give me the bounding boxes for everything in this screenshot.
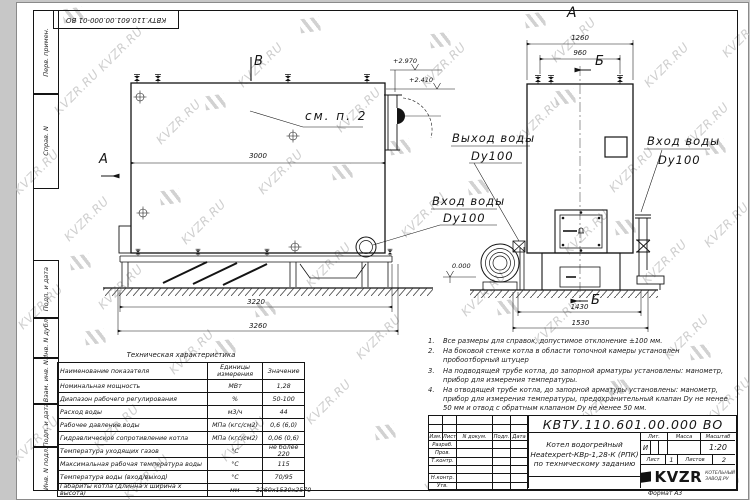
- sidebar-stamp-label: Взам. инв. N: [42, 360, 50, 402]
- inlet-water-left-label: Вход воды: [432, 194, 505, 208]
- tb-change-cell: [511, 416, 528, 425]
- view-marker-a-top: А: [567, 5, 577, 21]
- format-note: Формат А3: [648, 490, 682, 497]
- side-view: [101, 57, 455, 335]
- spec-cell-value: 50-100: [262, 393, 304, 405]
- tb-lit-headers: Лит. Масса Масштаб: [641, 433, 735, 441]
- spec-cell-unit: мм: [207, 484, 262, 496]
- spec-row: Габариты котла (длинна х ширина х высота…: [58, 483, 304, 496]
- sidebar-stamp-label: Инв. N дубл.: [42, 317, 50, 360]
- tb-sign-cell: [511, 466, 528, 474]
- note-item: 1.Все размеры для справок, допустимое от…: [428, 337, 731, 346]
- front-view: [443, 40, 664, 332]
- tb-sign-cell: [493, 458, 511, 466]
- tb-sign-cell: [457, 441, 493, 449]
- elevation-top: +2.970: [393, 57, 417, 65]
- tb-change-cell: [457, 416, 493, 425]
- top-reference-stamp: КВТУ.110.601.00.000-01 ВО: [53, 10, 179, 29]
- spec-cell-name: Расход воды: [58, 406, 207, 418]
- spec-cell-name: Номинальная мощность: [58, 380, 207, 392]
- spec-cell-unit: м3/ч: [207, 406, 263, 418]
- spec-cell-unit: °С: [207, 458, 263, 470]
- format-value: А3: [674, 490, 682, 497]
- tb-change-cell: [443, 425, 457, 434]
- spec-table: Техническая характеристика Наименование …: [57, 351, 305, 497]
- tb-sign-row-label: Пров.: [429, 449, 457, 457]
- sidebar-stamp-label: Перв. примен.: [42, 28, 50, 77]
- spec-cell-unit: %: [207, 393, 263, 405]
- sheet-value: 1: [665, 455, 677, 465]
- tb-col-header: Изм.: [429, 433, 443, 441]
- top-reference-stamp-text: КВТУ.110.601.00.000-01 ВО: [66, 16, 166, 24]
- spec-cell-name: Диапазон рабочего регулирования: [58, 393, 207, 405]
- tb-change-cell: [493, 416, 511, 425]
- tb-sign-cell: [511, 483, 528, 491]
- spec-row: Рабочее давление водыМПа (кгс/см2)0,6 (6…: [58, 418, 304, 431]
- spec-row: Температура уходящих газов°Сне более 220: [58, 444, 304, 457]
- tb-sheet-row: Лист 1 Листов 2: [641, 455, 735, 465]
- tb-sign-cell: [457, 449, 493, 457]
- spec-cell-value: 70/95: [262, 471, 304, 483]
- dim-3220: 3220: [120, 298, 392, 306]
- tb-sign-cell: [511, 474, 528, 482]
- section-marker-a-left: А: [99, 152, 108, 167]
- kvzr-logo-subtext-line2: ЗАВОД.РУ: [705, 477, 735, 483]
- sidebar-stamp-box: Справ. N: [33, 93, 59, 189]
- spec-header-value: Значение: [262, 363, 304, 379]
- note-number: 2.: [428, 347, 443, 365]
- spec-cell-unit: МВт: [207, 380, 263, 392]
- sidebar-stamp-box: Подп. и дата: [33, 403, 59, 448]
- tb-change-cell: [443, 416, 457, 425]
- sidebar-stamp-box: Инв. N дубл.: [33, 317, 59, 359]
- note-text: На подводящей трубе котла, до запорной а…: [443, 367, 731, 385]
- section-marker-b: В: [254, 54, 263, 69]
- dim-3000: 3000: [131, 152, 385, 160]
- tb-blank-cell: [528, 476, 641, 488]
- tb-sign-cell: [511, 449, 528, 457]
- dim-1260: 1260: [527, 34, 633, 42]
- tb-sign-cell: [457, 458, 493, 466]
- spec-cell-unit: МПа (кгс/см2): [207, 432, 263, 444]
- kvzr-logo-text: KVZR: [654, 468, 702, 486]
- lit-cell-2: [650, 441, 658, 455]
- tb-sign-cell: [493, 483, 511, 491]
- sidebar-stamp-box: Подп. и дата: [33, 260, 59, 319]
- notes-list: 1.Все размеры для справок, допустимое от…: [428, 337, 731, 414]
- spec-cell-value: 0,6 (6,0): [262, 419, 304, 431]
- dim-1430: 1430: [518, 303, 641, 311]
- spec-cell-name: Гидравлическое сопротивление котла: [58, 432, 207, 444]
- kvzr-flag-icon: [641, 471, 651, 482]
- note-item: 2.На боковой стенке котла в области топо…: [428, 347, 731, 365]
- note-text: Все размеры для справок, допустимое откл…: [443, 337, 731, 346]
- tb-lit-values: И 1:20: [641, 441, 735, 455]
- dim-960: 960: [540, 49, 620, 57]
- dim-1530: 1530: [513, 319, 648, 327]
- spec-cell-value: 0,06 (0,6): [262, 432, 304, 444]
- spec-cell-unit: °С: [207, 445, 263, 457]
- spec-cell-value: 3260х1530х2570: [262, 484, 304, 496]
- spec-row: Гидравлическое сопротивление котлаМПа (к…: [58, 431, 304, 444]
- inlet-water-right-dn: Dy100: [658, 153, 701, 167]
- spec-row: Номинальная мощностьМВт1,28: [58, 379, 304, 392]
- elevation-zero: 0.000: [452, 262, 471, 270]
- doc-title-line3: по техническому заданию: [534, 459, 635, 469]
- elevation-mid: +2.410: [409, 76, 433, 84]
- spec-cell-name: Температура воды (вход/выход): [58, 471, 207, 483]
- spec-cell-value: 44: [262, 406, 304, 418]
- tb-sign-cell: [511, 441, 528, 449]
- tb-change-cell: [429, 416, 443, 425]
- lit-header: Лит.: [641, 433, 667, 441]
- tb-change-cell: [457, 425, 493, 434]
- mass-header: Масса: [667, 433, 700, 441]
- tb-sign-cell: [493, 449, 511, 457]
- tb-col-header: Дата: [511, 433, 528, 441]
- sidebar-stamp-box: Перв. примен.: [33, 10, 59, 95]
- note-number: 3.: [428, 367, 443, 385]
- tb-sign-cell: [493, 466, 511, 474]
- note-number: 1.: [428, 337, 443, 346]
- note-item: 3.На подводящей трубе котла, до запорной…: [428, 367, 731, 385]
- drawing-canvas: KVZR.RUKVZR.RUKVZR.RUKVZR.RUKVZR.RUKVZR.…: [0, 0, 750, 500]
- doc-number: КВТУ.110.601.00.000 ВО: [528, 416, 737, 433]
- doc-title-line1: Котел водогрейный: [546, 440, 623, 450]
- tb-sign-cell: [457, 466, 493, 474]
- spec-cell-name: Габариты котла (длинна х ширина х высота…: [58, 484, 207, 496]
- spec-cell-unit: °С: [207, 471, 263, 483]
- tb-col-header: Подп.: [493, 433, 511, 441]
- logo-cell: KVZR КОТЕЛЬНЫЙ ЗАВОД.РУ: [641, 465, 735, 488]
- spec-row: Расход водым3/ч44: [58, 405, 304, 418]
- scale-value: 1:20: [700, 441, 735, 455]
- spec-header-row: Наименование показателя Единицы измерени…: [58, 363, 304, 379]
- kvzr-logo-subtext-line1: КОТЕЛЬНЫЙ: [705, 471, 735, 477]
- sidebar-stamp-label: Справ. N: [42, 126, 50, 156]
- spec-header-unit: Единицы измерения: [207, 363, 263, 379]
- spec-cell-unit: МПа (кгс/см2): [207, 419, 263, 431]
- spec-cell-name: Максимальная рабочая температура воды: [58, 458, 207, 470]
- doc-title: Котел водогрейный Heatexpert-КВр-1,28-К …: [528, 433, 641, 476]
- tb-sign-row-label: Разраб.: [429, 441, 457, 449]
- scale-header: Масштаб: [700, 433, 735, 441]
- tb-sign-cell: [493, 474, 511, 482]
- mass-value: [667, 441, 700, 455]
- spec-header-name: Наименование показателя: [58, 363, 207, 379]
- spec-cell-value: не более 220: [262, 445, 304, 457]
- tb-sign-cell: [511, 458, 528, 466]
- spec-table-grid: Наименование показателя Единицы измерени…: [57, 362, 305, 497]
- tb-change-cell: [429, 425, 443, 434]
- note-text: На боковой стенке котла в области топочн…: [443, 347, 731, 365]
- sidebar-stamp-label: Инв. N подл.: [42, 447, 50, 490]
- sidebar-stamp-box: Взам. инв. N: [33, 357, 59, 405]
- dim-3260: 3260: [118, 322, 398, 330]
- title-block: Изм.ЛистN докум.Подп.ДатаРазраб.Пров.Т.к…: [428, 415, 737, 490]
- spec-row: Максимальная рабочая температура воды°С1…: [58, 457, 304, 470]
- tb-sign-cell: [457, 483, 493, 491]
- spec-cell-value: 115: [262, 458, 304, 470]
- kvzr-logo-subtext: КОТЕЛЬНЫЙ ЗАВОД.РУ: [705, 471, 735, 482]
- tb-col-header: Лист: [443, 433, 457, 441]
- lit-cell-3: [658, 441, 667, 455]
- tb-sign-row-label: Утв.: [429, 483, 457, 491]
- tb-sign-row-label: Т.контр.: [429, 458, 457, 466]
- sidebar-stamp-label: Подп. и дата: [42, 403, 50, 447]
- spec-row: Диапазон рабочего регулирования%50-100: [58, 392, 304, 405]
- spec-row: Температура воды (вход/выход)°С70/95: [58, 470, 304, 483]
- section-marker-b-top: Б: [595, 54, 604, 69]
- outlet-water-label: Выход воды: [452, 131, 535, 145]
- doc-title-line2: Heatexpert-КВр-1,28-К (РПК): [530, 450, 638, 460]
- sidebar-stamp-box: Инв. N подл.: [33, 446, 59, 491]
- sheets-label: Листов: [677, 455, 712, 465]
- sheets-value: 2: [712, 455, 735, 465]
- tb-sign-row-label: Н.контр.: [429, 474, 457, 482]
- lit-value: И: [641, 441, 650, 455]
- see-note-ref: см. п. 2: [305, 109, 367, 123]
- spec-cell-value: 1,28: [262, 380, 304, 392]
- note-text: На отводящей трубе котла, до запорной ар…: [443, 386, 731, 414]
- note-item: 4.На отводящей трубе котла, до запорной …: [428, 386, 731, 414]
- note-number: 4.: [428, 386, 443, 414]
- inlet-water-left-dn: Dy100: [443, 211, 486, 225]
- spec-cell-name: Температура уходящих газов: [58, 445, 207, 457]
- spec-table-title: Техническая характеристика: [57, 351, 305, 362]
- tb-col-header: N докум.: [457, 433, 493, 441]
- inlet-water-right-label: Вход воды: [647, 134, 720, 148]
- sidebar-stamp-label: Подп. и дата: [42, 267, 50, 311]
- tb-sign-row-label: [429, 466, 457, 474]
- tb-change-cell: [493, 425, 511, 434]
- tb-sign-cell: [493, 441, 511, 449]
- outlet-water-dn: Dy100: [471, 149, 514, 163]
- tb-sign-cell: [457, 474, 493, 482]
- format-label: Формат: [648, 490, 672, 497]
- spec-cell-name: Рабочее давление воды: [58, 419, 207, 431]
- tb-change-cell: [511, 425, 528, 434]
- sheet-label: Лист: [641, 455, 665, 465]
